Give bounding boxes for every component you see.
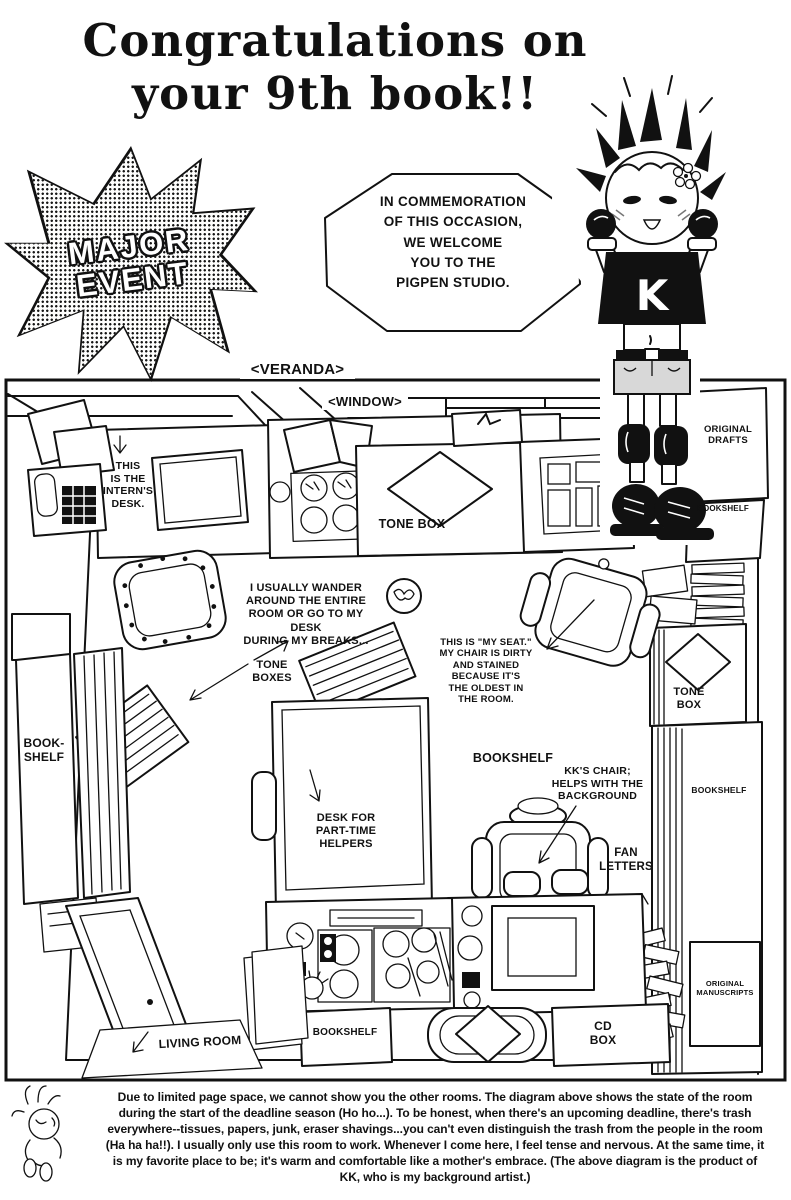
label-bookshelf-center: BOOKSHELF [470, 751, 556, 766]
corner-doodle [12, 1086, 61, 1181]
shirt-letter: K [636, 271, 670, 320]
page-title: Congratulations on your 9th book!! [70, 14, 600, 120]
character-fist-left [586, 209, 616, 239]
kneepad-left [618, 424, 650, 464]
boot-left [612, 484, 660, 528]
burst-label: MAJOR EVENT [0, 131, 271, 396]
glue-shelf [452, 410, 522, 446]
label-bookshelf-bottom: BOOKSHELF [306, 1027, 384, 1039]
major-event-burst: MAJOR EVENT [4, 146, 258, 382]
label-my-seat-note: THIS IS "MY SEAT." MY CHAIR IS DIRTY AND… [436, 637, 536, 705]
scanner-case [428, 1006, 546, 1062]
label-bookshelf-left: BOOK- SHELF [14, 736, 74, 765]
label-tone-box-center: TONE BOX [366, 517, 458, 532]
label-window: <WINDOW> [322, 394, 408, 410]
page-title-line2: your 9th book!! [70, 67, 600, 120]
label-helpers-desk: DESK FOR PART-TIME HELPERS [304, 812, 388, 852]
label-tone-box-right: TONE BOX [662, 686, 716, 712]
label-kk-chair: KK'S CHAIR; HELPS WITH THE BACKGROUND [545, 765, 650, 803]
label-original-drafts: ORIGINAL DRAFTS [698, 424, 758, 447]
trash-bin [387, 579, 421, 613]
label-veranda: <VERANDA> [240, 361, 355, 379]
manga-page: Congratulations on your 9th book!! MAJOR… [0, 0, 791, 1200]
label-fan-letters: FAN LETTERS [594, 847, 658, 875]
footer-note: Due to limited page space, we cannot sho… [104, 1089, 766, 1185]
page-title-line1: Congratulations on [70, 14, 600, 67]
label-wander-note: I USUALLY WANDER AROUND THE ENTIRE ROOM … [232, 582, 380, 648]
leaning-folders [244, 946, 308, 1050]
label-original-manuscripts: ORIGINAL MANUSCRIPTS [690, 979, 760, 997]
label-bookshelf-top-right: BOOKSHELF [690, 504, 756, 514]
speech-bubble-text: IN COMMEMORATION OF THIS OCCASION, WE WE… [332, 192, 574, 293]
kneepad-right [654, 426, 688, 466]
dotted-chair [111, 547, 229, 652]
label-cd-box: CD BOX [574, 1019, 632, 1048]
character-fist-right [688, 209, 718, 239]
helpers-desk [252, 698, 432, 912]
label-interns-desk: THIS IS THE INTERN'S DESK. [90, 460, 166, 510]
label-tone-boxes: TONE BOXES [244, 659, 300, 685]
label-bookshelf-right: BOOKSHELF [684, 785, 754, 795]
